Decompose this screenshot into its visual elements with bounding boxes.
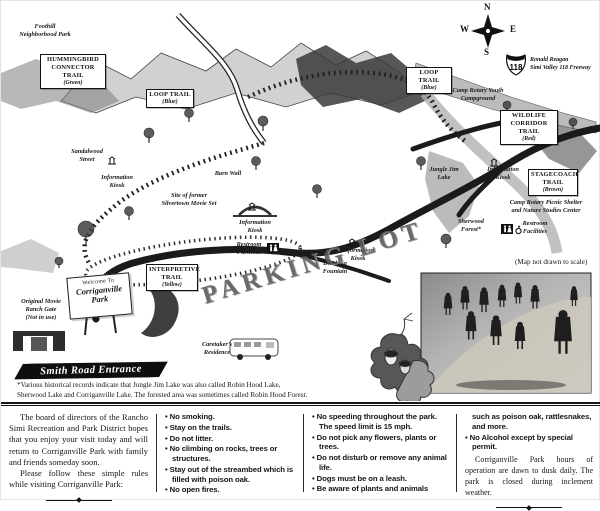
rule-item: No open fires. bbox=[165, 485, 295, 495]
freeway-118-shield-icon: 118 bbox=[507, 55, 526, 75]
rules-column-3: No speeding throughout the park. The spe… bbox=[304, 409, 456, 501]
label-information-kiosk-bridge: Information Kiosk bbox=[233, 219, 277, 235]
label-information-kiosk-east: Information Kiosk bbox=[481, 166, 525, 182]
rules-intro-column: The board of directors of the Rancho Sim… bbox=[1, 409, 156, 501]
rule-item: No Alcohol except by special permit. bbox=[465, 433, 593, 453]
rule-continuation: such as poison oak, rattlesnakes, and mo… bbox=[465, 412, 593, 432]
rules-column-2: No smoking. Stay on the trails. Do not l… bbox=[157, 409, 303, 501]
trail-box-stagecoach: STAGECOACH TRAIL (Brown) bbox=[528, 169, 578, 196]
restroom-icon-center bbox=[267, 243, 279, 253]
trail-name: LOOP TRAIL bbox=[409, 69, 449, 85]
label-original-movie-ranch-gate: Original Movie Ranch Gate (Not in use) bbox=[13, 298, 69, 323]
trail-color-note: (Blue) bbox=[149, 99, 191, 106]
freeway-shield-number: 118 bbox=[510, 63, 523, 72]
label-restroom-facilities-center: Restroom Facilities bbox=[231, 241, 267, 257]
label-camp-rotary-picnic-shelter: Camp Rotary Picnic Shelter and Nature St… bbox=[505, 199, 587, 215]
rule-item: Dogs must be on a leash. bbox=[312, 474, 448, 484]
rules-column-4: such as poison oak, rattlesnakes, and mo… bbox=[457, 409, 600, 501]
intro-paragraph-1: The board of directors of the Rancho Sim… bbox=[9, 412, 148, 468]
label-jungle-jim-lake: Jungle Jim Lake bbox=[425, 166, 463, 182]
map-area: 118 bbox=[1, 1, 600, 401]
trail-name: INTERPRETIVE TRAIL bbox=[149, 266, 195, 282]
trail-box-loop-right: LOOP TRAIL (Blue) bbox=[406, 67, 452, 94]
trail-color-note: (Yellow) bbox=[149, 282, 195, 289]
compass-east-label: E bbox=[510, 24, 516, 34]
rule-item: Do not disturb or remove any animal life… bbox=[312, 453, 448, 473]
trail-name: LOOP TRAIL bbox=[149, 91, 191, 99]
rule-item: No speeding throughout the park. The spe… bbox=[312, 412, 448, 432]
rule-item: Do not pick any flowers, plants or trees… bbox=[312, 433, 448, 453]
rule-item: Be aware of plants and animals bbox=[312, 484, 448, 494]
intro-paragraph-2: Please follow these simple rules while v… bbox=[9, 468, 148, 490]
trail-box-interpretive: INTERPRETIVE TRAIL (Yellow) bbox=[146, 264, 198, 291]
rule-item: Stay on the trails. bbox=[165, 423, 295, 433]
compass-south-label: S bbox=[484, 47, 489, 57]
trail-name: HUMMINGBIRD CONNECTOR TRAIL bbox=[43, 56, 103, 80]
trail-name: WILDLIFE CORRIDOR TRAIL bbox=[503, 112, 555, 136]
trail-color-note: (Green) bbox=[43, 80, 103, 87]
rule-item: No smoking. bbox=[165, 412, 295, 422]
map-footnote: *Various historical records indicate tha… bbox=[17, 380, 309, 400]
trail-color-note: (Red) bbox=[503, 136, 555, 143]
divider-ornament bbox=[496, 504, 562, 511]
label-barn-wall: Barn Wall bbox=[207, 170, 249, 178]
rules-section: The board of directors of the Rancho Sim… bbox=[1, 402, 600, 501]
label-information-kiosk-nw: Information Kiosk bbox=[93, 174, 141, 190]
label-sherwood-forest: Sherwood Forest* bbox=[453, 218, 489, 234]
label-sandalwood-street: Sandalwood Street bbox=[63, 148, 111, 164]
label-foothill-neighborhood-park: Foothill Neighborhood Park bbox=[9, 23, 81, 39]
label-map-scale-note: (Map not drawn to scale) bbox=[515, 258, 587, 266]
label-caretakers-residence: Caretaker's Residence bbox=[199, 341, 235, 357]
welcome-sign: Welcome To Corriganville Park bbox=[66, 272, 132, 319]
bridge-sketch bbox=[233, 207, 277, 216]
hours-of-operation: Corriganville Park hours of operation ar… bbox=[465, 455, 593, 498]
rule-item: No climbing on rocks, trees or structure… bbox=[165, 444, 295, 464]
compass-west-label: W bbox=[460, 24, 469, 34]
trail-color-note: (Blue) bbox=[409, 85, 449, 92]
label-camp-rotary-youth-campground: Camp Rotary Youth Campground bbox=[445, 87, 511, 103]
trail-color-note: (Brown) bbox=[531, 187, 575, 194]
compass-north-label: N bbox=[484, 2, 491, 12]
label-movie-set-site: Site of former Silvertown Movie Set bbox=[155, 192, 223, 208]
park-map-page: 118 bbox=[0, 0, 600, 500]
rules-columns: The board of directors of the Rancho Sim… bbox=[1, 409, 600, 501]
entrance-banner-text: Smith Road Entrance bbox=[40, 364, 142, 378]
trail-name: STAGECOACH TRAIL bbox=[531, 171, 575, 187]
trail-box-loop-left: LOOP TRAIL (Blue) bbox=[146, 89, 194, 108]
rule-item: Do not litter. bbox=[165, 434, 295, 444]
divider-ornament bbox=[46, 497, 112, 504]
hikers-photo bbox=[421, 273, 591, 393]
rule-item: Stay out of the streambed which is fille… bbox=[165, 465, 295, 485]
trail-box-hummingbird-connector: HUMMINGBIRD CONNECTOR TRAIL (Green) bbox=[40, 54, 106, 89]
compass-rose-icon bbox=[471, 14, 505, 48]
label-restroom-facilities-east: Restroom Facilities bbox=[516, 220, 554, 236]
ranch-gate-sketch bbox=[13, 331, 65, 351]
trail-box-wildlife-corridor: WILDLIFE CORRIDOR TRAIL (Red) bbox=[500, 110, 558, 145]
label-freeway-name: Ronald Reagan Simi Valley 118 Freeway bbox=[530, 56, 591, 72]
rv-sketch bbox=[230, 339, 278, 360]
